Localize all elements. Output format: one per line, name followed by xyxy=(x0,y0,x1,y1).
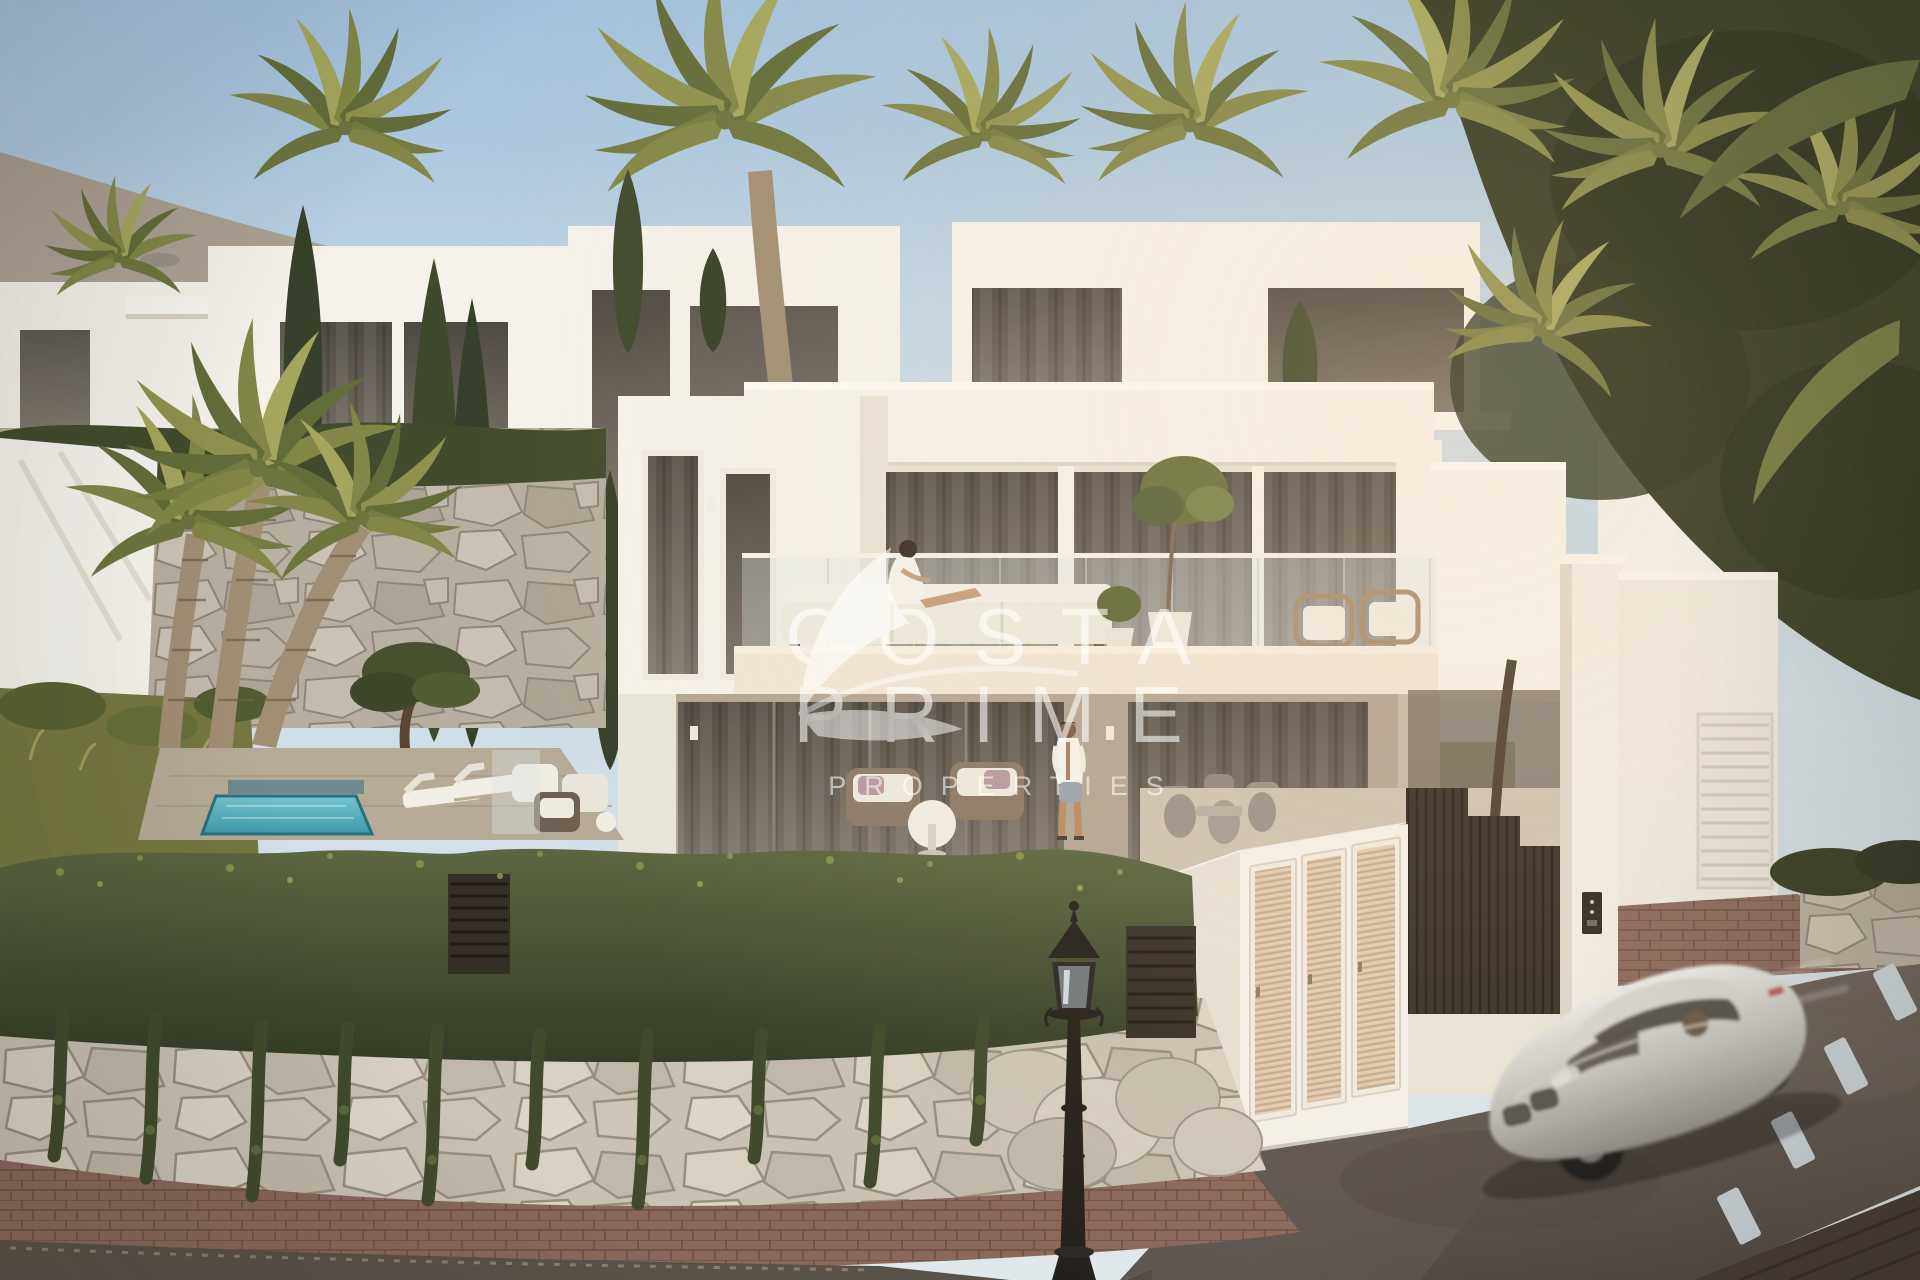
watermark-line-1: COSTA xyxy=(785,592,1225,681)
watermark-line-2: PRIME xyxy=(793,670,1216,759)
architectural-render: COSTA PRIME PROPERTIES xyxy=(0,0,1920,1280)
watermark-line-3: PROPERTIES xyxy=(828,771,1182,801)
